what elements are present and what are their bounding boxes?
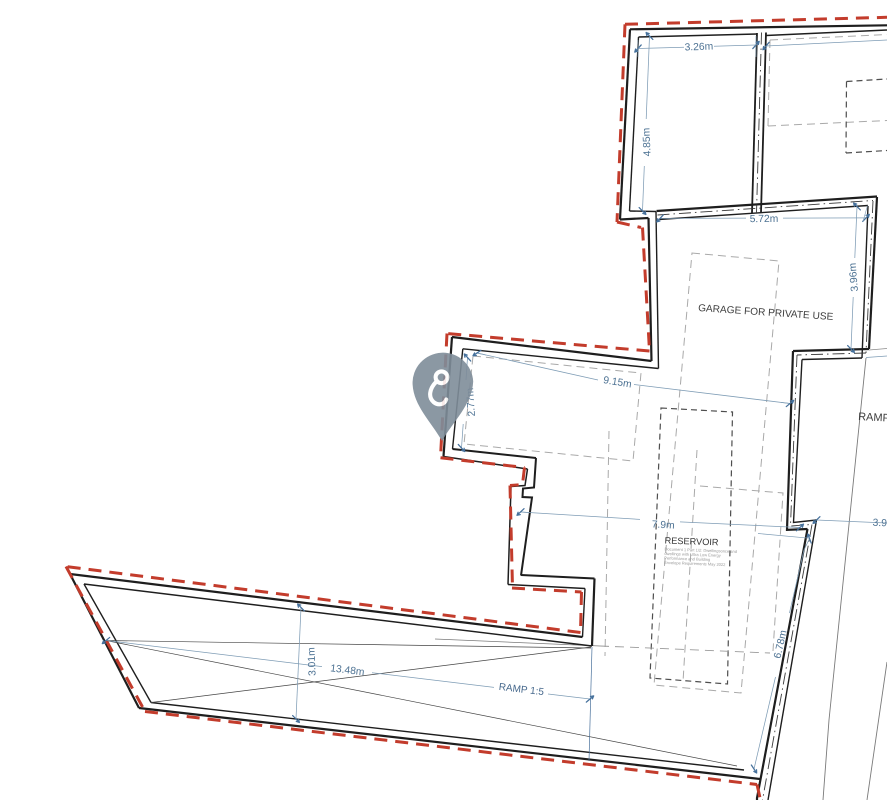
- svg-text:3.01m: 3.01m: [306, 647, 318, 676]
- svg-text:4.85m: 4.85m: [641, 128, 653, 157]
- svg-text:3.26m: 3.26m: [684, 42, 713, 54]
- svg-text:5.72m: 5.72m: [750, 214, 779, 225]
- svg-text:RESERVOIR: RESERVOIR: [664, 536, 719, 548]
- svg-text:3.91m: 3.91m: [872, 518, 887, 530]
- svg-text:7.9m: 7.9m: [651, 519, 674, 531]
